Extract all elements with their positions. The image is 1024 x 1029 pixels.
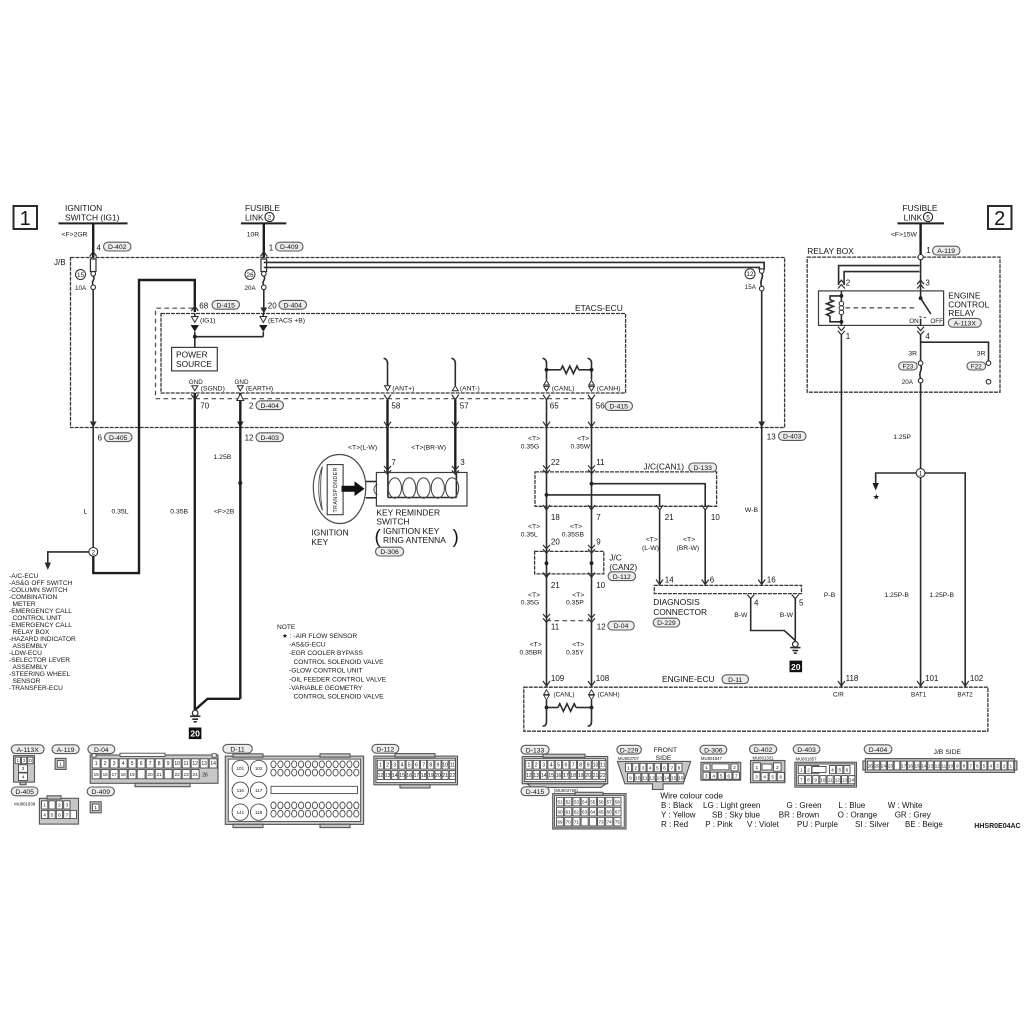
svg-text:10: 10: [174, 761, 180, 767]
svg-text:6: 6: [710, 576, 715, 585]
svg-text:0.35G: 0.35G: [521, 600, 540, 607]
svg-text:<T>: <T>: [570, 524, 582, 531]
svg-text:-COLUMN SWITCH: -COLUMN SWITCH: [9, 587, 68, 594]
svg-text:10: 10: [593, 763, 599, 769]
svg-text:0.35BR: 0.35BR: [520, 650, 543, 657]
svg-text:13: 13: [385, 773, 391, 779]
svg-text:-GLOW CONTROL UNIT: -GLOW CONTROL UNIT: [289, 668, 362, 675]
svg-text:SOURCE: SOURCE: [176, 359, 212, 369]
svg-text:17: 17: [563, 773, 569, 779]
svg-text:7: 7: [66, 812, 69, 818]
svg-text:12: 12: [649, 775, 655, 781]
svg-text:21: 21: [551, 581, 560, 590]
svg-text:14: 14: [392, 773, 398, 779]
svg-text:A-119: A-119: [57, 747, 75, 754]
svg-text:NOTE: NOTE: [277, 624, 296, 631]
svg-text:10: 10: [596, 581, 605, 590]
svg-text:16: 16: [678, 775, 684, 781]
svg-text:): ): [453, 527, 459, 548]
svg-text:D-229: D-229: [620, 747, 639, 754]
svg-text:D-402: D-402: [754, 747, 773, 754]
svg-text:RELAY BOX: RELAY BOX: [807, 246, 854, 256]
svg-text:D-409: D-409: [92, 789, 111, 796]
svg-text:MU801857: MU801857: [796, 756, 818, 761]
svg-text:52: 52: [566, 799, 572, 804]
svg-text:6: 6: [565, 763, 568, 769]
svg-text:141: 141: [236, 810, 244, 815]
svg-text:(ETACS +B): (ETACS +B): [268, 318, 305, 325]
svg-text:7: 7: [596, 513, 601, 522]
svg-text:2: 2: [846, 278, 851, 287]
svg-text:15: 15: [915, 763, 920, 768]
svg-text:2: 2: [386, 763, 389, 769]
svg-text:16: 16: [908, 763, 913, 768]
svg-text:12: 12: [746, 271, 754, 278]
svg-text:23: 23: [184, 772, 190, 777]
svg-text:L: L: [84, 508, 88, 515]
svg-text:-COMBINATION: -COMBINATION: [9, 594, 57, 601]
svg-text:14: 14: [664, 775, 670, 781]
svg-text:8: 8: [158, 761, 161, 767]
svg-text:<T>: <T>: [530, 641, 542, 648]
svg-text:ASSEMBLY: ASSEMBLY: [13, 643, 49, 650]
svg-text:65: 65: [598, 809, 604, 814]
svg-text:21: 21: [593, 773, 599, 779]
svg-text:<T>: <T>: [683, 537, 695, 544]
svg-text:CONTROL SOLENOID VALVE: CONTROL SOLENOID VALVE: [294, 659, 385, 666]
svg-text:<T>: <T>: [572, 592, 584, 599]
svg-text:A-119: A-119: [937, 248, 955, 255]
svg-text:19: 19: [428, 773, 434, 779]
svg-text:1: 1: [627, 765, 630, 771]
svg-text:-AS&G OFF SWITCH: -AS&G OFF SWITCH: [9, 580, 73, 587]
svg-text:D-403: D-403: [797, 747, 816, 754]
svg-text:1: 1: [800, 767, 803, 773]
svg-text:63: 63: [582, 809, 588, 814]
svg-text:3R: 3R: [908, 350, 917, 357]
svg-text:D-404: D-404: [869, 747, 888, 754]
svg-text:13: 13: [657, 775, 663, 781]
svg-text:1: 1: [95, 761, 98, 767]
svg-text:4: 4: [763, 775, 766, 781]
svg-text:3: 3: [542, 763, 545, 769]
svg-text:7: 7: [391, 458, 396, 467]
svg-text:(SGND): (SGND): [201, 385, 225, 392]
svg-text:3: 3: [22, 766, 25, 771]
svg-text:4: 4: [22, 774, 25, 779]
svg-text:6: 6: [98, 433, 103, 442]
svg-text:0.35G: 0.35G: [521, 444, 540, 451]
svg-text:D-409: D-409: [280, 244, 299, 251]
svg-text:1.25P-B: 1.25P-B: [930, 592, 955, 599]
svg-text:Wire colour code: Wire colour code: [660, 791, 723, 801]
svg-text:<T>: <T>: [528, 524, 540, 531]
svg-text:CONNECTOR: CONNECTOR: [653, 607, 707, 617]
svg-text:2: 2: [807, 767, 810, 773]
svg-text:3: 3: [705, 774, 708, 780]
svg-text:3: 3: [113, 761, 116, 767]
svg-text:-STEERING WHEEL: -STEERING WHEEL: [9, 671, 71, 678]
svg-text:9: 9: [629, 775, 632, 781]
svg-text:-VARIABLE GEOMETRY: -VARIABLE GEOMETRY: [289, 685, 363, 692]
svg-text:DIAGNOSIS: DIAGNOSIS: [653, 597, 700, 607]
svg-text:11: 11: [642, 775, 647, 781]
svg-text:(CAN2): (CAN2): [609, 562, 637, 572]
svg-text:21: 21: [442, 773, 448, 779]
svg-text:18: 18: [421, 773, 427, 779]
svg-text:5: 5: [408, 763, 411, 769]
svg-text:5: 5: [838, 767, 841, 773]
svg-text:11: 11: [551, 623, 560, 632]
svg-text:D-229: D-229: [657, 620, 676, 627]
svg-text:20: 20: [791, 662, 801, 672]
svg-text:13: 13: [201, 761, 207, 767]
svg-text:1: 1: [379, 763, 382, 769]
svg-text:V : Violet: V : Violet: [747, 820, 780, 829]
svg-text:73: 73: [598, 819, 604, 824]
svg-text:20: 20: [585, 773, 591, 779]
svg-text:2: 2: [733, 765, 736, 771]
svg-text:7: 7: [735, 774, 738, 780]
svg-text:6: 6: [415, 763, 418, 769]
svg-text:4: 4: [831, 767, 834, 773]
svg-text:1: 1: [269, 243, 274, 252]
svg-text:ON: ON: [909, 318, 919, 325]
svg-text:2: 2: [994, 208, 1005, 230]
svg-text:14: 14: [665, 576, 674, 585]
svg-text:4: 4: [925, 332, 930, 341]
svg-text:2: 2: [535, 763, 538, 769]
svg-text:6: 6: [663, 765, 666, 771]
svg-text:14: 14: [921, 763, 926, 768]
svg-text:8: 8: [678, 765, 681, 771]
svg-text:3: 3: [460, 458, 465, 467]
svg-text:GR : Grey: GR : Grey: [895, 810, 931, 819]
svg-text:5: 5: [557, 763, 560, 769]
svg-text:55: 55: [590, 799, 596, 804]
svg-text:★ : -AIR FLOW SENSOR: ★ : -AIR FLOW SENSOR: [282, 632, 357, 640]
svg-text:10: 10: [442, 763, 448, 769]
svg-text:13: 13: [842, 778, 848, 783]
svg-text:11: 11: [600, 763, 605, 769]
svg-text:ENGINE-ECU: ENGINE-ECU: [662, 674, 715, 684]
svg-text:ASSEMBLY: ASSEMBLY: [13, 664, 49, 671]
svg-text:9: 9: [814, 778, 817, 783]
svg-text:15: 15: [94, 772, 100, 777]
svg-text:0.35W: 0.35W: [571, 444, 591, 451]
svg-text:(ANT-): (ANT-): [460, 385, 480, 392]
svg-text:20: 20: [435, 773, 441, 779]
svg-text:15: 15: [548, 773, 554, 779]
svg-text:8: 8: [579, 763, 582, 769]
svg-text:HHSR0E04AC: HHSR0E04AC: [974, 823, 1020, 830]
svg-text:3: 3: [755, 775, 758, 781]
svg-text:J/B SIDE: J/B SIDE: [934, 749, 962, 756]
svg-text:G : Green: G : Green: [787, 801, 822, 810]
svg-text:1: 1: [94, 805, 97, 811]
svg-text:D-133: D-133: [526, 747, 545, 754]
svg-text:-A/C-ECU: -A/C-ECU: [9, 573, 39, 580]
svg-text:118: 118: [846, 674, 859, 683]
svg-text:4: 4: [43, 812, 46, 818]
svg-text:METER: METER: [13, 601, 36, 608]
svg-text:SI : Silver: SI : Silver: [855, 820, 890, 829]
svg-text:9: 9: [167, 761, 170, 767]
svg-text:67: 67: [615, 809, 621, 814]
svg-text:C/R: C/R: [833, 692, 844, 699]
svg-text:0.35L: 0.35L: [521, 532, 538, 539]
svg-text:(ANT+): (ANT+): [392, 385, 414, 392]
svg-text:7: 7: [422, 763, 425, 769]
svg-text:O : Orange: O : Orange: [838, 810, 878, 819]
svg-text:12: 12: [245, 433, 254, 442]
svg-text:1: 1: [846, 332, 851, 341]
svg-text:-EGR COOLER BYPASS: -EGR COOLER BYPASS: [289, 650, 363, 657]
svg-text:54: 54: [582, 799, 588, 804]
svg-text:21: 21: [665, 513, 674, 522]
svg-text:14: 14: [541, 773, 547, 779]
svg-text:1: 1: [43, 803, 46, 809]
svg-text:118: 118: [255, 810, 263, 815]
svg-text:116: 116: [237, 788, 245, 793]
svg-text:65: 65: [550, 401, 559, 410]
svg-text:4: 4: [122, 761, 125, 767]
svg-text:71: 71: [574, 819, 580, 824]
svg-text:75: 75: [615, 819, 621, 824]
svg-text:<F>2GR: <F>2GR: [62, 232, 88, 239]
svg-text:70: 70: [566, 819, 572, 824]
svg-text:17: 17: [414, 773, 420, 779]
svg-text:74: 74: [607, 819, 613, 824]
svg-text:3: 3: [393, 763, 396, 769]
svg-text:1.25P-B: 1.25P-B: [884, 592, 909, 599]
svg-text:5: 5: [51, 812, 54, 818]
svg-text:★: ★: [873, 493, 880, 502]
svg-text:16: 16: [103, 772, 109, 777]
svg-text:B : Black: B : Black: [661, 801, 694, 810]
svg-text:0.35L: 0.35L: [112, 508, 129, 515]
svg-text:PU : Purple: PU : Purple: [797, 820, 838, 829]
svg-text:-EMERGENCY CALL: -EMERGENCY CALL: [9, 608, 72, 615]
svg-text:Y : Yellow: Y : Yellow: [661, 810, 696, 819]
svg-text:B-W: B-W: [780, 612, 794, 619]
svg-text:F23: F23: [902, 363, 913, 370]
svg-text:<T>: <T>: [577, 436, 589, 443]
svg-text:4: 4: [401, 763, 404, 769]
svg-text:18: 18: [551, 513, 560, 522]
svg-text:22: 22: [600, 773, 606, 779]
svg-text:SB : Sky blue: SB : Sky blue: [712, 810, 761, 819]
svg-text:D-11: D-11: [728, 677, 742, 684]
svg-text:23: 23: [888, 763, 893, 768]
svg-text:4: 4: [649, 765, 652, 771]
svg-text:26: 26: [202, 772, 208, 778]
svg-text:4: 4: [754, 598, 759, 607]
svg-text:102: 102: [255, 766, 263, 771]
svg-text:2: 2: [249, 401, 254, 410]
svg-text:LG : Light green: LG : Light green: [703, 801, 760, 810]
svg-text:25: 25: [874, 763, 879, 768]
svg-text:56: 56: [596, 402, 605, 411]
svg-text:53: 53: [574, 799, 580, 804]
svg-text:-HAZARD INDICATOR: -HAZARD INDICATOR: [9, 636, 76, 643]
svg-text:4: 4: [712, 774, 715, 780]
svg-text:61: 61: [566, 809, 572, 814]
svg-text:KEY: KEY: [311, 537, 328, 547]
svg-text:7: 7: [800, 778, 803, 783]
svg-text:1.25B: 1.25B: [214, 454, 232, 461]
svg-text:2: 2: [92, 549, 96, 556]
svg-text:26: 26: [246, 272, 254, 279]
svg-text:9: 9: [596, 537, 601, 546]
svg-text:(CANL): (CANL): [552, 385, 575, 392]
svg-text:(BR-W): (BR-W): [677, 545, 700, 552]
svg-text:15: 15: [77, 272, 85, 279]
svg-text:14: 14: [210, 761, 216, 767]
svg-text:16: 16: [556, 773, 562, 779]
svg-text:(CANL): (CANL): [554, 692, 575, 699]
svg-text:6: 6: [727, 774, 730, 780]
svg-text:22: 22: [551, 458, 560, 467]
svg-text:CONTROL SOLENOID VALVE: CONTROL SOLENOID VALVE: [294, 694, 385, 701]
svg-text:BAT2: BAT2: [957, 692, 973, 699]
svg-text:<F>15W: <F>15W: [891, 232, 918, 239]
svg-text:J/C: J/C: [609, 553, 622, 563]
svg-text:12: 12: [526, 773, 532, 779]
svg-text:14: 14: [849, 778, 855, 783]
svg-text:10: 10: [711, 513, 720, 522]
svg-text:D-112: D-112: [613, 574, 631, 581]
svg-text:(IG1): (IG1): [200, 318, 215, 325]
svg-text:10R: 10R: [247, 232, 260, 239]
svg-text:MU801839: MU801839: [14, 802, 36, 807]
svg-text:4: 4: [97, 243, 102, 252]
svg-text:10: 10: [820, 778, 826, 783]
svg-text:21: 21: [157, 772, 163, 777]
svg-text:RING ANTENNA: RING ANTENNA: [383, 535, 446, 545]
svg-text:BAT1: BAT1: [911, 692, 927, 699]
svg-text:-EMERGENCY CALL: -EMERGENCY CALL: [9, 622, 72, 629]
svg-text:BE : Beige: BE : Beige: [905, 820, 943, 829]
svg-text:D-04: D-04: [94, 747, 109, 754]
svg-text:70: 70: [200, 401, 209, 410]
svg-text:62: 62: [574, 809, 580, 814]
svg-text:D-403: D-403: [783, 434, 802, 441]
svg-text:(CANH): (CANH): [597, 385, 621, 392]
svg-text:17: 17: [901, 763, 906, 768]
svg-text:-TRANSFER-ECU: -TRANSFER-ECU: [9, 685, 63, 692]
svg-text:56: 56: [598, 799, 604, 804]
svg-text:D-306: D-306: [704, 747, 723, 754]
svg-text:A-113X: A-113X: [17, 747, 40, 754]
svg-text:D-404: D-404: [260, 403, 279, 410]
svg-text:1: 1: [705, 765, 708, 771]
svg-text:11: 11: [450, 763, 455, 769]
svg-text:RELAY: RELAY: [948, 308, 975, 318]
svg-text:5: 5: [771, 775, 774, 781]
svg-text:LINK: LINK: [904, 213, 923, 223]
svg-text:20A: 20A: [902, 379, 914, 386]
svg-text:1: 1: [926, 246, 931, 255]
svg-text:D-306: D-306: [380, 549, 399, 556]
svg-text:-AS&G-ECU: -AS&G-ECU: [289, 642, 326, 649]
svg-text:D-405: D-405: [109, 435, 128, 442]
svg-text:1: 1: [528, 763, 531, 769]
svg-text:7: 7: [670, 765, 673, 771]
svg-text:26: 26: [868, 763, 873, 768]
svg-text:3R: 3R: [977, 350, 986, 357]
svg-text:B-W: B-W: [734, 612, 748, 619]
svg-text:11: 11: [183, 761, 188, 767]
svg-text:57: 57: [460, 401, 469, 410]
svg-text:RELAY BOX: RELAY BOX: [13, 629, 50, 636]
svg-text:0.35P: 0.35P: [566, 600, 584, 607]
svg-text:1: 1: [59, 762, 62, 768]
svg-text:5: 5: [131, 761, 134, 767]
svg-text:W : White: W : White: [888, 801, 923, 810]
svg-text:<T>: <T>: [528, 436, 540, 443]
svg-text:9: 9: [437, 763, 440, 769]
svg-text:10A: 10A: [75, 285, 87, 292]
svg-text:12: 12: [835, 778, 841, 783]
svg-text:J/B: J/B: [54, 258, 66, 267]
svg-text:FUSIBLE: FUSIBLE: [903, 203, 938, 213]
svg-text:15: 15: [399, 773, 405, 779]
svg-text:9: 9: [587, 763, 590, 769]
svg-text:D-112: D-112: [376, 746, 394, 753]
svg-text:<T>(L-W): <T>(L-W): [348, 445, 377, 452]
svg-text:117: 117: [255, 788, 263, 793]
svg-text:(EARTH): (EARTH): [246, 385, 273, 392]
svg-text:FUSIBLE: FUSIBLE: [245, 203, 280, 213]
svg-text:58: 58: [615, 799, 621, 804]
svg-text:P-B: P-B: [824, 592, 836, 599]
svg-text:LINK: LINK: [245, 213, 264, 223]
svg-text:SWITCH (IG1): SWITCH (IG1): [65, 213, 120, 223]
svg-text:22: 22: [175, 772, 181, 777]
svg-text:12: 12: [935, 763, 940, 768]
svg-text:0.35Y: 0.35Y: [566, 650, 584, 657]
svg-text:MU801331: MU801331: [753, 755, 775, 760]
svg-text:D-415: D-415: [526, 789, 545, 796]
svg-text:CONTROL UNIT: CONTROL UNIT: [13, 615, 62, 622]
svg-text:64: 64: [590, 809, 596, 814]
svg-text:-OIL FEEDER CONTROL VALVE: -OIL FEEDER CONTROL VALVE: [289, 676, 387, 683]
svg-text:D-415: D-415: [216, 302, 235, 309]
svg-text:51: 51: [557, 799, 563, 804]
svg-text:16: 16: [767, 576, 776, 585]
svg-text:109: 109: [551, 674, 565, 683]
svg-text:15A: 15A: [745, 284, 757, 291]
svg-text:F22: F22: [971, 363, 982, 370]
svg-text:D-404: D-404: [283, 302, 302, 309]
svg-text:POWER: POWER: [176, 350, 208, 360]
svg-text:3: 3: [925, 278, 930, 287]
svg-text:-SELECTOR LEVER: -SELECTOR LEVER: [9, 657, 70, 664]
svg-text:101: 101: [925, 674, 939, 683]
svg-text:0.35SB: 0.35SB: [562, 532, 585, 539]
svg-text:W-B: W-B: [745, 507, 759, 514]
svg-text:20A: 20A: [245, 285, 257, 292]
svg-text:15: 15: [671, 775, 677, 781]
svg-text:19: 19: [130, 772, 136, 777]
svg-text:68: 68: [199, 301, 208, 310]
svg-text:10: 10: [948, 763, 953, 768]
svg-text:2: 2: [776, 765, 779, 771]
svg-text:OFF: OFF: [930, 318, 943, 325]
svg-text:D-133: D-133: [693, 465, 712, 472]
svg-text:11: 11: [596, 458, 605, 467]
